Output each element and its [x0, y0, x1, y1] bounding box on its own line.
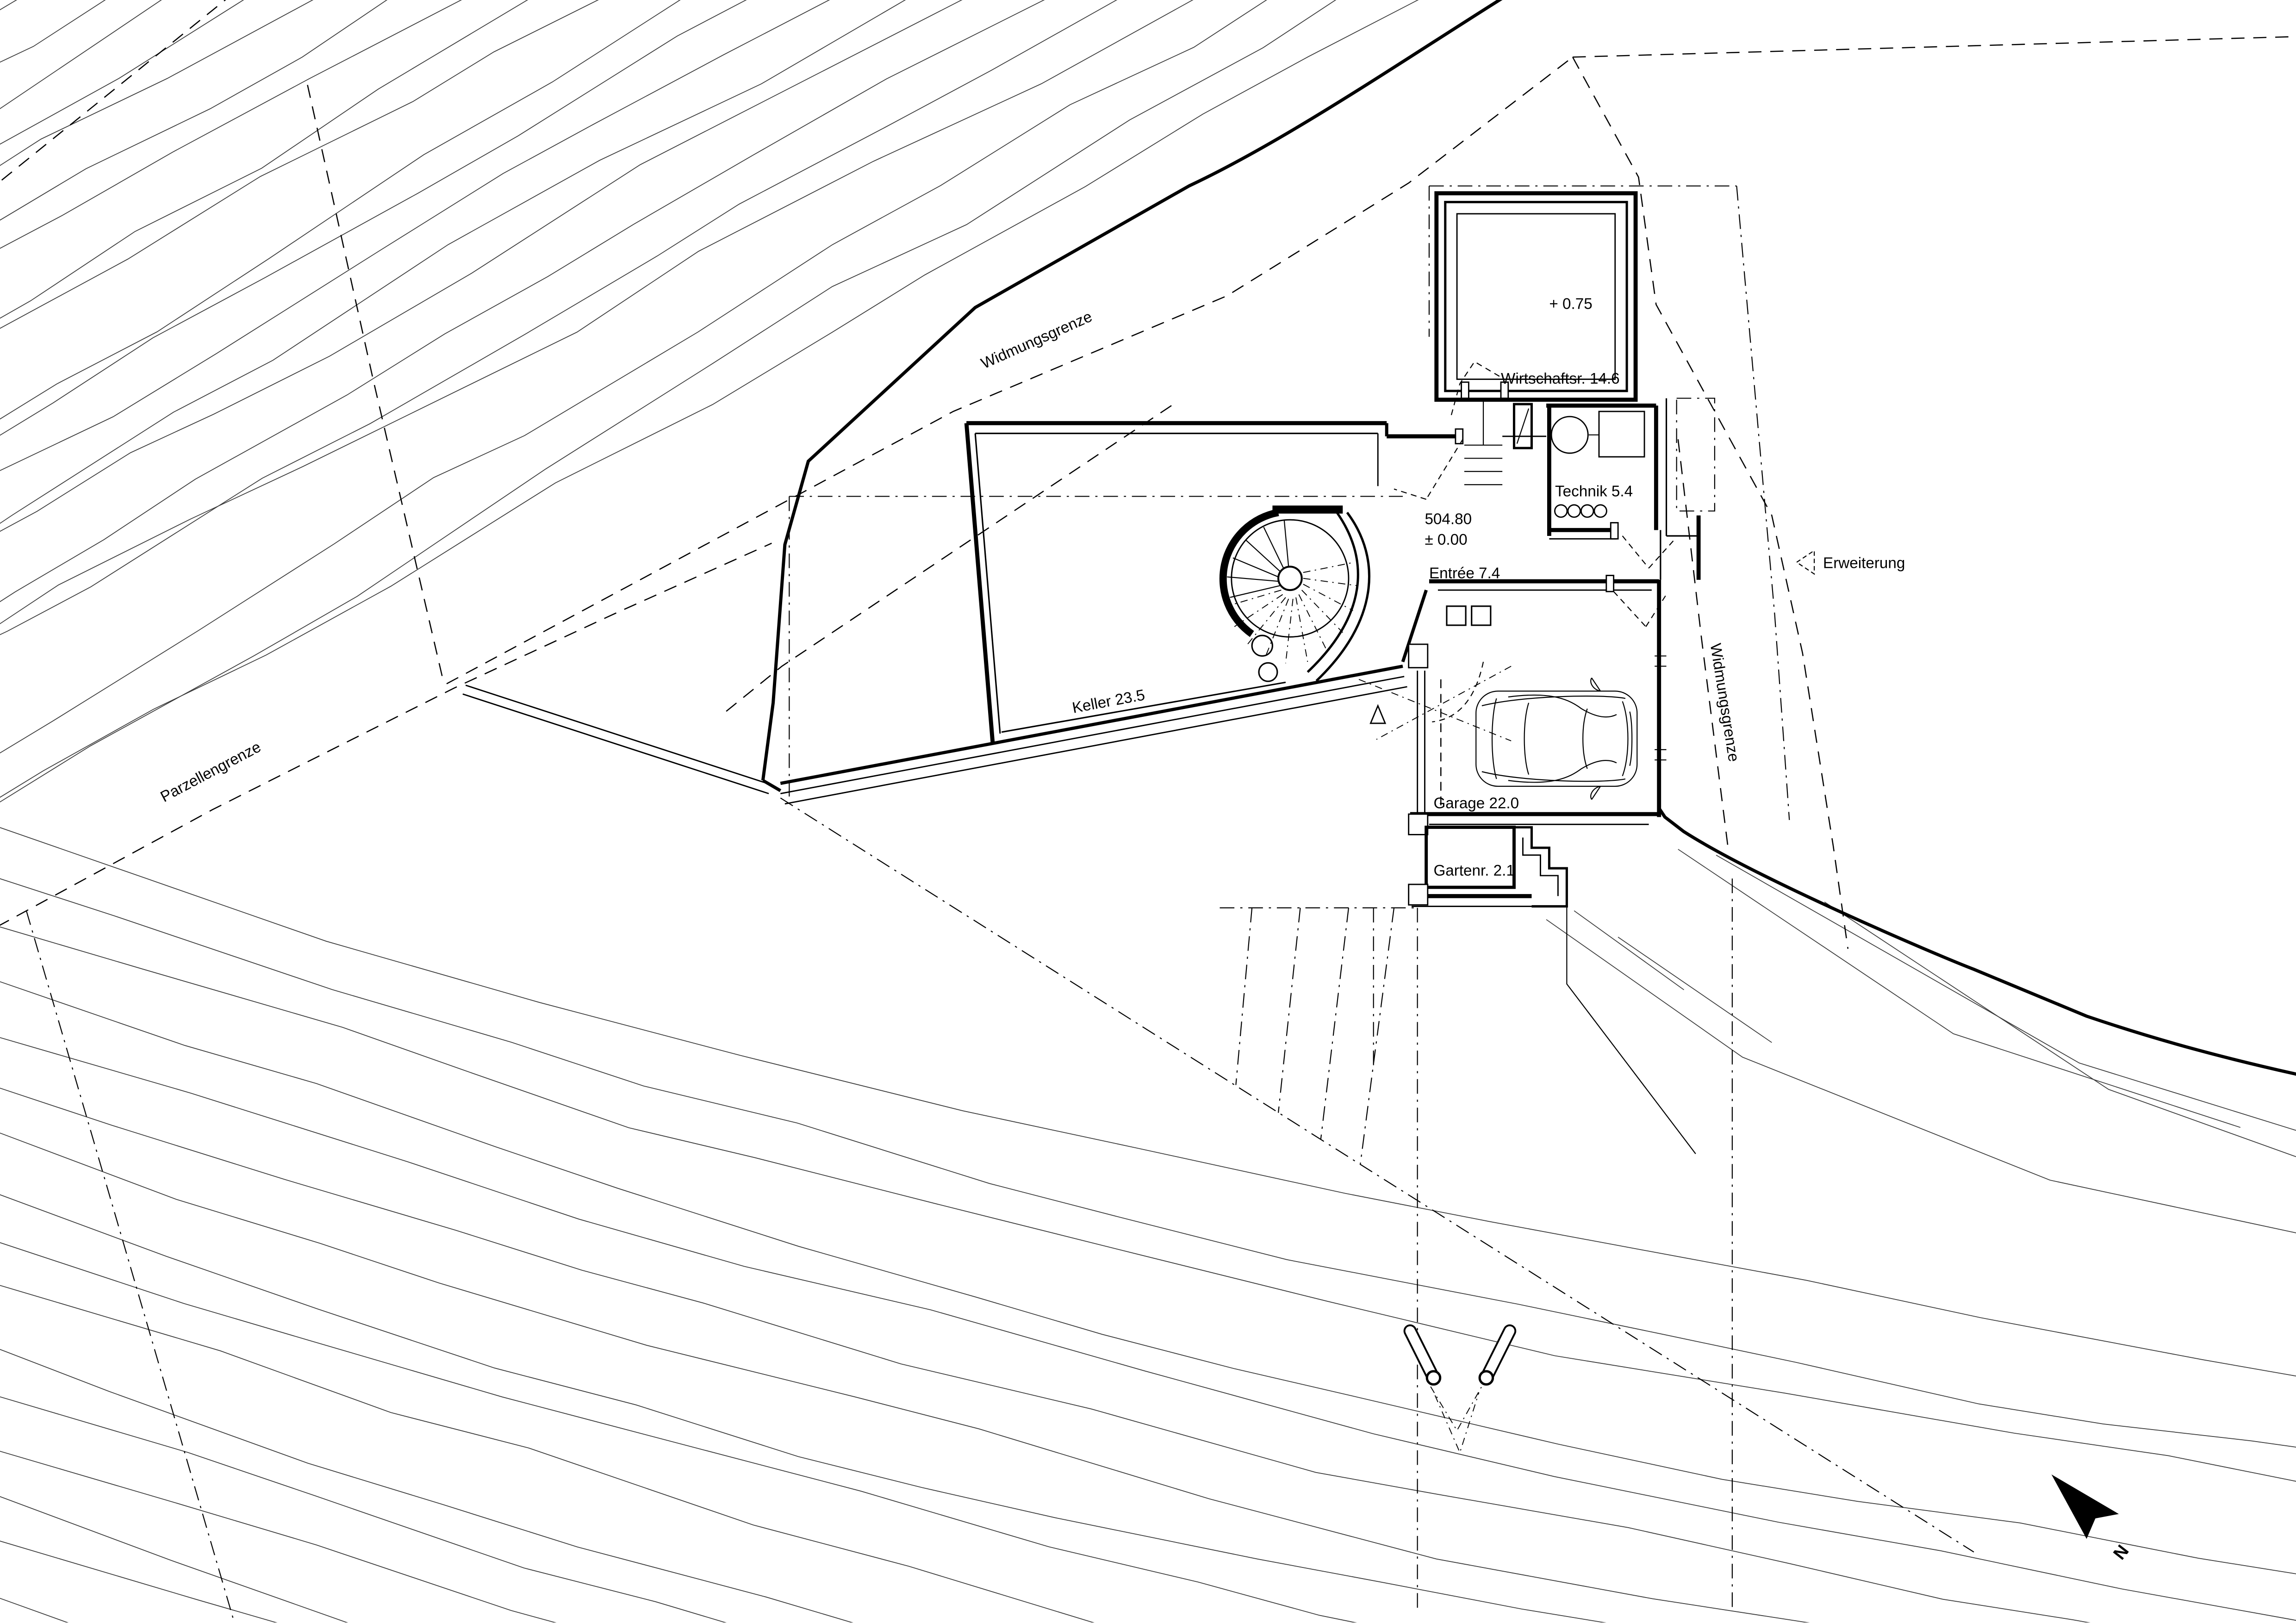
terrain-edges: [463, 0, 2296, 1154]
contour-line: [0, 875, 2296, 1468]
contour-line: [0, 923, 2296, 1500]
contour-line: [0, 0, 31, 91]
label-level-upper: + 0.75: [1549, 296, 1592, 313]
technik-floor-symbols: [1555, 505, 1606, 517]
contour-line: [0, 823, 2296, 1389]
contour-line: [0, 0, 329, 237]
label-keller: Keller 23.5: [1071, 686, 1146, 716]
contour-line: [0, 1190, 1680, 1622]
spiral-staircase: [1223, 510, 1369, 681]
contour-line: [0, 1282, 1132, 1623]
contour-line: [0, 1129, 1845, 1623]
contour-line: [0, 0, 1062, 653]
site-plan-canvas: N Widmungsgrenze Widmungsgrenze Parzelle…: [0, 0, 2296, 1623]
label-gartenraum: Gartenr. 2.1: [1433, 862, 1514, 879]
label-widmungsgrenze-top: Widmungsgrenze: [978, 308, 1095, 373]
contour-line: [0, 0, 257, 164]
contour-line: [0, 1034, 2296, 1623]
contour-line: [0, 0, 400, 297]
contour-line: [0, 0, 763, 464]
north-arrow-icon: N: [2052, 1474, 2133, 1563]
contour-line: [0, 0, 542, 379]
car-top-view: [1476, 678, 1637, 800]
spiral-treads-solid: [1227, 520, 1288, 597]
erweiterung-arrow-icon: [1797, 551, 1814, 574]
parzellengrenze-line: [0, 543, 772, 937]
label-technik: Technik 5.4: [1555, 483, 1633, 500]
widmungsgrenze-top-line: [447, 57, 1573, 684]
slope-lines: [1546, 849, 2296, 1233]
label-entree: Entrée 7.4: [1429, 565, 1500, 582]
exterior-stair-dashed: [1220, 908, 1418, 1164]
contour-line: [0, 1393, 873, 1623]
contour-line: [0, 0, 478, 294]
contour-line: [0, 1594, 159, 1623]
contour-line: [0, 1448, 642, 1622]
boundary-lines: [0, 0, 2296, 1623]
label-elevation-relative: ± 0.00: [1425, 531, 1467, 548]
contour-line: [0, 0, 920, 632]
borehole-markers: [1410, 1331, 1510, 1453]
label-erweiterung: Erweiterung: [1823, 555, 1905, 572]
contour-lines-lower: [0, 823, 2296, 1622]
contour-line: [0, 0, 1132, 692]
label-garage: Garage 22.0: [1433, 795, 1519, 812]
contour-line: [0, 0, 1280, 779]
contour-line: [0, 0, 174, 182]
contour-line: [0, 0, 118, 100]
label-wirtschaftsraum: Wirtschaftsr. 14.6: [1501, 370, 1620, 387]
contour-line: [0, 0, 979, 560]
contour-line: [0, 978, 2296, 1595]
contour-line: [0, 0, 694, 490]
contour-lines-upper: [0, 0, 1435, 834]
contour-line: [0, 1084, 2291, 1623]
plan-labels: Widmungsgrenze Widmungsgrenze Parzelleng…: [158, 296, 1905, 879]
label-elevation-absolute: 504.80: [1425, 511, 1472, 528]
label-widmungsgrenze-right: Widmungsgrenze: [1707, 642, 1742, 763]
label-parzellengrenze: Parzellengrenze: [158, 739, 264, 806]
